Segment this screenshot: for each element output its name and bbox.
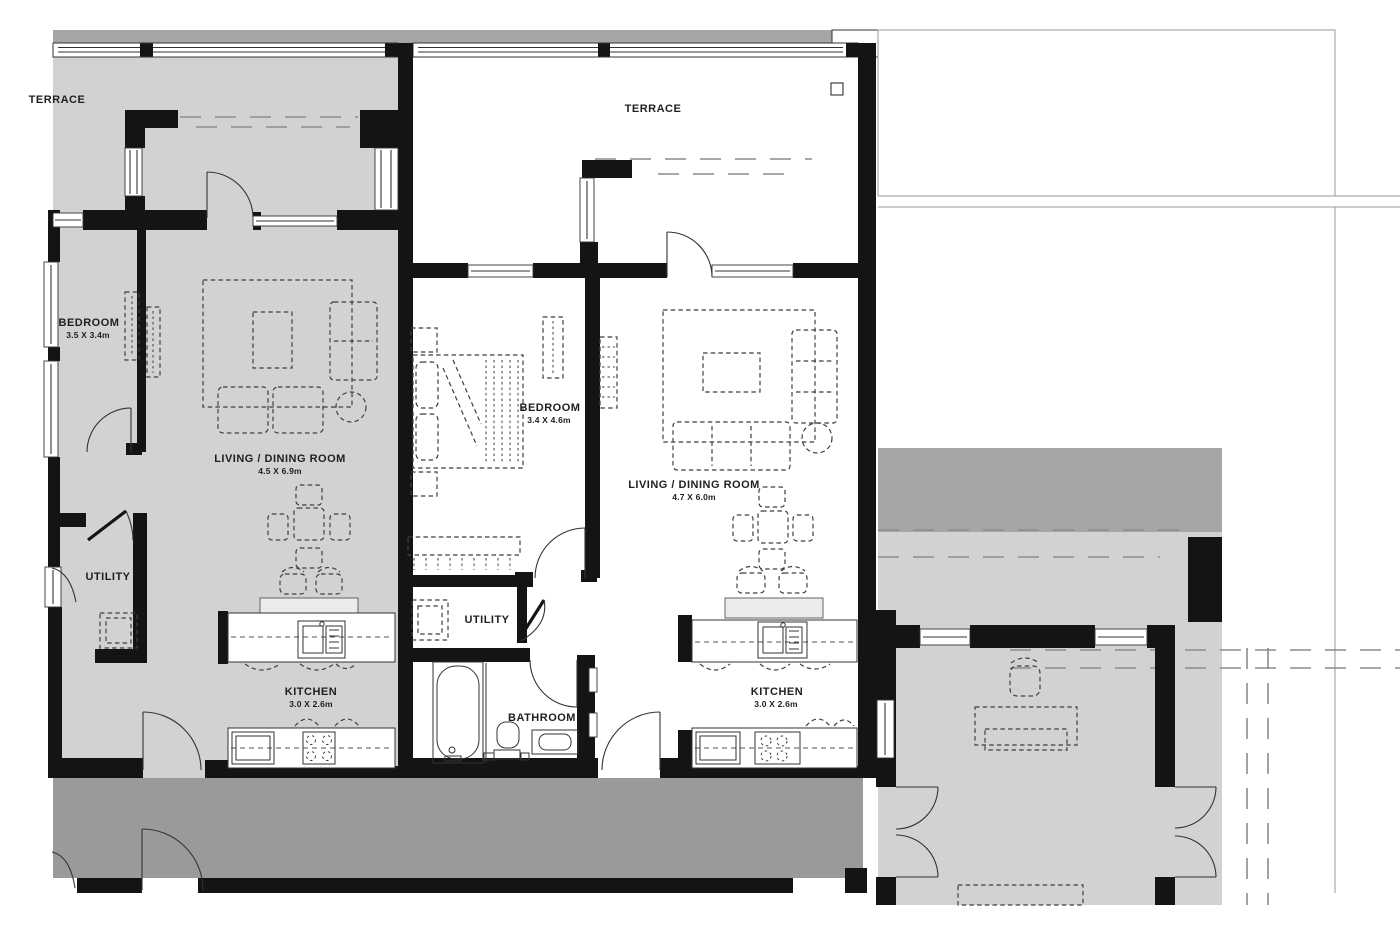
window: [253, 216, 337, 226]
floor-plan-page: TERRACE TERRACE BEDROOM 3.5 X 3.4m LIVIN…: [0, 0, 1400, 933]
label-terrace-center: TERRACE: [625, 103, 682, 115]
floor-fills: [0, 0, 1400, 933]
window: [712, 265, 793, 277]
party-wall-center-right: [858, 43, 876, 778]
breakfast-bar: [725, 598, 823, 618]
window: [589, 668, 597, 692]
floor-plan-svg: TERRACE TERRACE BEDROOM 3.5 X 3.4m LIVIN…: [0, 0, 1400, 933]
dims-bedroom-center: 3.4 X 4.6m: [527, 415, 571, 425]
label-utility-left: UTILITY: [85, 571, 130, 583]
dims-living-center: 4.7 X 6.0m: [672, 492, 716, 502]
window: [125, 148, 142, 196]
window: [375, 148, 398, 210]
label-terrace-left: TERRACE: [29, 94, 86, 106]
window: [877, 700, 894, 758]
kitchen-island: [692, 620, 857, 662]
window: [468, 265, 533, 277]
label-utility-center: UTILITY: [464, 614, 509, 626]
terrace-railings: [53, 43, 858, 57]
corridor-floor: [53, 778, 863, 878]
window: [53, 213, 83, 227]
breakfast-bar: [260, 598, 358, 615]
dims-kitchen-center: 3.0 X 2.6m: [754, 699, 798, 709]
dims-bedroom-left: 3.5 X 3.4m: [66, 330, 110, 340]
railing-post: [385, 44, 398, 57]
dims-living-left: 4.5 X 6.9m: [258, 466, 302, 476]
window: [920, 629, 970, 645]
railing-post: [846, 43, 858, 57]
railing-post: [598, 44, 610, 57]
window: [44, 262, 58, 347]
label-living-center: LIVING / DINING ROOM: [628, 479, 760, 491]
kitchen-island: [228, 613, 395, 662]
bedroom-living-divider-center: [585, 278, 600, 578]
label-kitchen-center: KITCHEN: [751, 686, 803, 698]
left-unit-floor: [53, 43, 398, 778]
window: [589, 713, 597, 737]
label-bathroom: BATHROOM: [508, 712, 576, 724]
window: [580, 178, 594, 242]
label-bedroom-center: BEDROOM: [520, 402, 581, 414]
label-bedroom-left: BEDROOM: [59, 317, 120, 329]
window: [1095, 629, 1147, 645]
bedroom-living-divider-left: [137, 210, 146, 452]
dims-kitchen-left: 3.0 X 2.6m: [289, 699, 333, 709]
label-living-left: LIVING / DINING ROOM: [214, 453, 346, 465]
window: [45, 567, 61, 607]
party-wall-left-center: [398, 43, 413, 778]
railing-post: [140, 44, 153, 57]
label-kitchen-left: KITCHEN: [285, 686, 337, 698]
right-terrace-floor: [878, 448, 1222, 532]
window: [44, 361, 58, 457]
top-parapet-band: [53, 30, 832, 43]
